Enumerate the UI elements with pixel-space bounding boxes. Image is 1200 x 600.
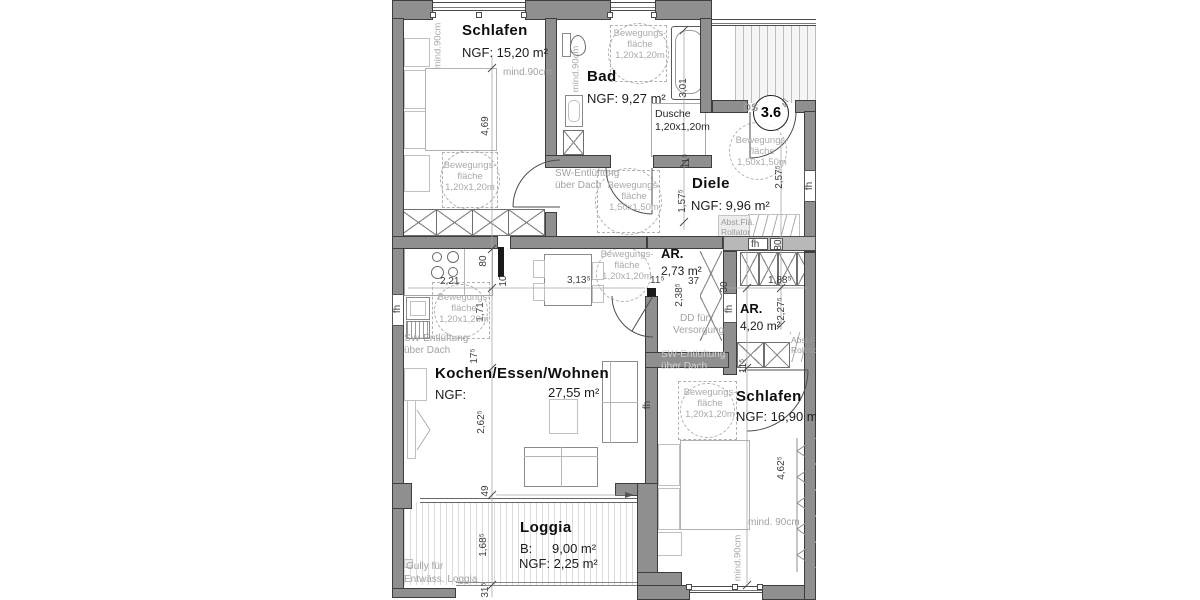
room-area-bad: NGF: 9,27 m² bbox=[587, 92, 666, 105]
room-title-diele: Diele bbox=[692, 176, 730, 191]
dim-11-schlafen2: 11⁵ bbox=[739, 359, 749, 374]
dim-80-kitchen: 80 bbox=[479, 255, 489, 266]
bew-bad-line3: 1,20x1,20m bbox=[608, 51, 672, 61]
bew-diele-low-line2: fläche bbox=[600, 192, 668, 202]
room-area-wohnen-value: 27,55 m² bbox=[548, 386, 599, 399]
room-area-diele: NGF: 9,96 m² bbox=[691, 199, 770, 212]
note-sw-right-2: über Dach bbox=[661, 362, 707, 372]
note-abst-ar2-1: Abst.Flä bbox=[791, 336, 816, 345]
note-dusche-1: Dusche bbox=[655, 109, 691, 120]
floor-plan-sheet: SchlafenNGF: 15,20 m²BadNGF: 9,27 m²Diel… bbox=[0, 0, 1200, 600]
dim-2-62: 2,62⁵ bbox=[477, 410, 487, 434]
bew-schlafen2-line3: 1,20x1,20m bbox=[677, 410, 743, 420]
dimension-arrow bbox=[625, 492, 634, 498]
dim-17: 17⁵ bbox=[470, 348, 480, 363]
dim-3-01: 3,01 bbox=[679, 78, 689, 97]
dim-11-bad: 11⁵ bbox=[682, 154, 692, 169]
bew-diele-low-line3: 1,50x1,50m bbox=[600, 203, 668, 213]
room-area-ar-2: 4,20 m² bbox=[740, 320, 781, 332]
note-mind90-schlafen2-h: mind. 90cm bbox=[748, 518, 800, 528]
room-title-ar-2: AR. bbox=[740, 302, 762, 315]
bew-schlafen1-line2: fläche bbox=[438, 172, 502, 182]
bew-wohnen-line2: fläche bbox=[595, 261, 659, 271]
note-gully-1: Gully für bbox=[406, 562, 443, 572]
bew-diele-up-line2: fläche bbox=[728, 147, 796, 157]
note-mind90-bad: mind.90cm bbox=[571, 46, 581, 92]
dim-1-57: 1,57⁵ bbox=[678, 189, 688, 213]
note-mind90-schlafen1-v: mind.90cm bbox=[433, 23, 443, 69]
bew-schlafen2-line1: Bewegungs- bbox=[677, 388, 743, 398]
note-abst-diele-2: Rollator bbox=[721, 228, 750, 237]
bew-schlafen1-line3: 1,20x1,20m bbox=[438, 183, 502, 193]
bew-schlafen1-line1: Bewegungs- bbox=[438, 161, 502, 171]
room-title-schlafen-2: Schlafen bbox=[736, 389, 802, 404]
note-mind90-schlafen1-h: mind.90cm bbox=[503, 68, 552, 78]
dim-2-38: 2,38⁵ bbox=[675, 283, 685, 307]
window-label-fh-left: fh bbox=[393, 305, 403, 313]
dim-37: 37 bbox=[688, 277, 699, 287]
dim-10: 10 bbox=[499, 275, 509, 286]
note-abst-ar2-2: Rollator bbox=[791, 346, 816, 355]
door-arc bbox=[513, 160, 560, 207]
bew-kueche-line1: Bewegungs- bbox=[432, 293, 496, 303]
note-mind90-schlafen2-v: mind.90cm bbox=[733, 535, 743, 581]
dim-2-57: 2,57⁵ bbox=[775, 165, 785, 189]
dim-1-68: 1,68⁵ bbox=[479, 533, 489, 557]
note-dusche-2: 1,20x1,20m bbox=[655, 122, 710, 133]
room-area-loggia-b-value: 9,00 m² bbox=[552, 542, 596, 555]
note-sw-bad-1: SW-Entlüftung bbox=[555, 169, 619, 179]
room-area-loggia-ngf: NGF: 2,25 m² bbox=[519, 557, 598, 570]
note-dd-1: DD für bbox=[680, 314, 709, 324]
bew-diele-low-line1: Bewegungs- bbox=[600, 181, 668, 191]
bew-bad-line2: fläche bbox=[608, 40, 672, 50]
note-sw-right-1: SW-Entlüftung bbox=[661, 350, 725, 360]
room-title-schlafen-1: Schlafen bbox=[462, 23, 528, 38]
dim-2-21: 2,21 bbox=[440, 277, 459, 287]
dim-4-62: 4,62⁵ bbox=[777, 456, 787, 480]
dim-3-13: 3,13⁵ bbox=[567, 276, 591, 286]
bew-bad-line1: Bewegungs- bbox=[608, 29, 672, 39]
note-dd-2: Versorgung bbox=[673, 326, 724, 336]
entrance-door-label: DS bbox=[743, 103, 758, 114]
note-gully-2: Entwäss. Loggia bbox=[404, 575, 477, 585]
room-area-loggia-b-label: B: bbox=[520, 542, 532, 555]
room-title-loggia: Loggia bbox=[520, 520, 572, 535]
bew-wohnen-line1: Bewegungs- bbox=[595, 250, 659, 260]
dim-30: 30 bbox=[720, 281, 730, 292]
window-label-fh-party: fh bbox=[725, 305, 735, 313]
bew-schlafen2-line2: fläche bbox=[677, 399, 743, 409]
room-area-wohnen-ngf: NGF: bbox=[435, 388, 466, 401]
bew-diele-up-line1: Bewegungs- bbox=[728, 136, 796, 146]
note-abst-diele-1: Abst.Flä. bbox=[721, 218, 755, 227]
dim-31: 31⁵ bbox=[481, 582, 491, 597]
window-label-fh-wohnen: fh bbox=[643, 401, 653, 409]
room-title-wohnen: Kochen/Essen/Wohnen bbox=[435, 366, 609, 381]
room-title-bad: Bad bbox=[587, 69, 617, 84]
dim-80-ar2: 80 bbox=[774, 239, 784, 250]
dim-1-88: 1,88⁵ bbox=[768, 276, 792, 286]
dim-49: 49 bbox=[481, 485, 491, 496]
floor-plan: SchlafenNGF: 15,20 m²BadNGF: 9,27 m²Diel… bbox=[392, 0, 816, 600]
room-area-schlafen-1: NGF: 15,20 m² bbox=[462, 46, 548, 59]
bew-diele-up-line3: 1,50x1,50m bbox=[728, 158, 796, 168]
dim-4-69: 4,69 bbox=[481, 116, 491, 135]
window-label-fh-diele: fh bbox=[751, 240, 759, 250]
note-sw-kitchen-2: über Dach bbox=[404, 346, 450, 356]
bew-kueche-line3: 1,20x1,20m bbox=[432, 315, 496, 325]
bew-kueche-line2: fläche bbox=[432, 304, 496, 314]
bew-wohnen-line3: 1,20x1,20m bbox=[595, 272, 659, 282]
note-sw-bad-2: über Dach bbox=[555, 181, 601, 191]
window-label-fh-right: fh bbox=[805, 182, 815, 190]
note-sw-kitchen-1: SW-Entlüftung bbox=[404, 334, 468, 344]
wardrobe-zigzag bbox=[797, 438, 816, 572]
room-title-ar-1: AR. bbox=[661, 247, 683, 260]
room-area-schlafen-2: NGF: 16,90 m² bbox=[736, 410, 816, 423]
dim-2-27: 2,27⁵ bbox=[777, 297, 787, 321]
